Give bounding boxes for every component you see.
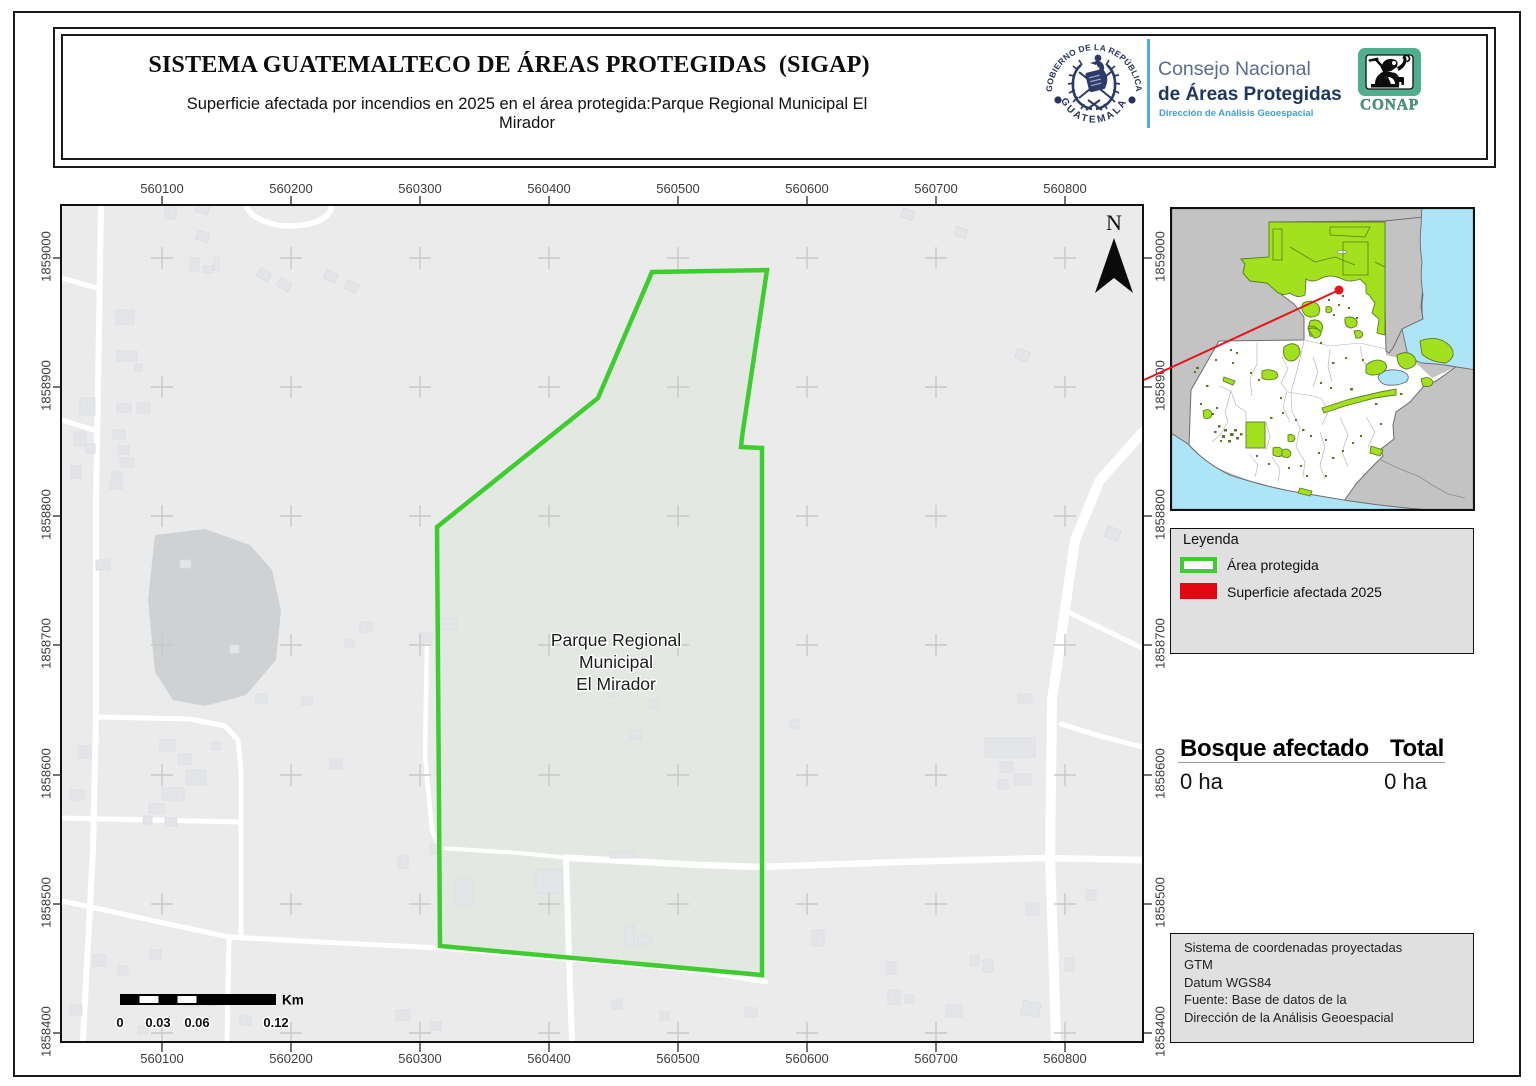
svg-text:GUATEMALA: GUATEMALA	[1058, 96, 1130, 125]
svg-text:N: N	[1106, 210, 1122, 235]
svg-text:Municipal: Municipal	[579, 652, 653, 672]
svg-text:0.06: 0.06	[184, 1015, 209, 1030]
svg-text:0.03: 0.03	[145, 1015, 170, 1030]
svg-text:Km: Km	[282, 993, 304, 1008]
svg-text:0.12: 0.12	[263, 1015, 288, 1030]
svg-text:Parque Regional: Parque Regional	[551, 630, 681, 650]
svg-text:0: 0	[116, 1015, 123, 1030]
svg-text:CONAP: CONAP	[1360, 97, 1419, 114]
svg-text:El Mirador: El Mirador	[576, 674, 656, 694]
